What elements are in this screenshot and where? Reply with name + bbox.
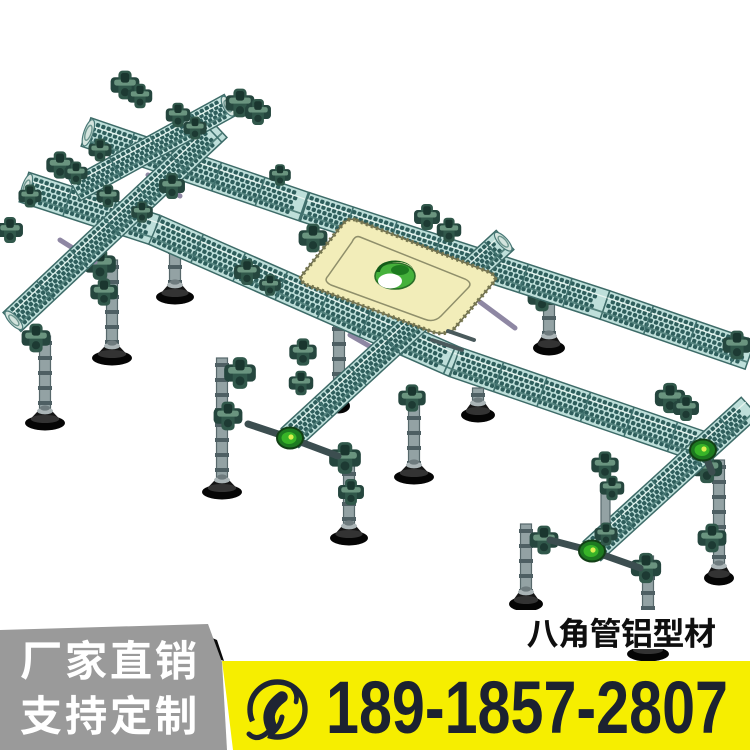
svg-text:189-1857-2807: 189-1857-2807: [326, 666, 728, 749]
